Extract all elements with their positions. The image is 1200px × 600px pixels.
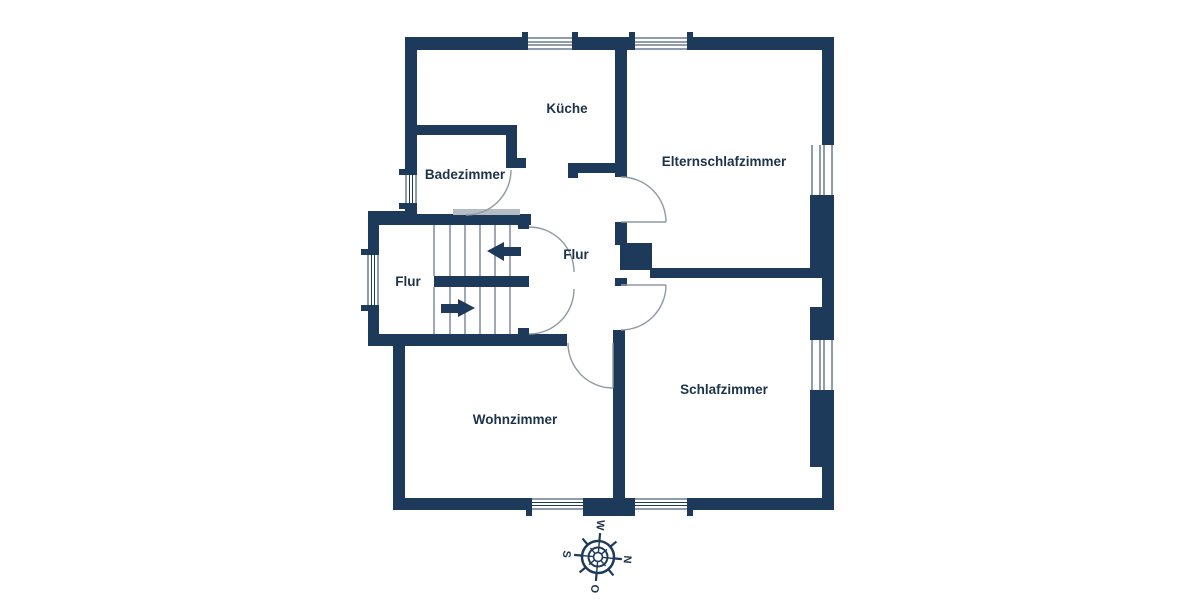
- wall-stair-right-lower: [518, 328, 529, 346]
- compass-letter-s: S: [560, 550, 573, 558]
- wall-pillar-bottom: [583, 498, 635, 516]
- interior-walls: [368, 50, 834, 510]
- stair-arrow-left: [487, 242, 521, 261]
- wall-pier-right-2: [810, 307, 822, 340]
- window-wohnzimmer: [526, 498, 583, 516]
- wall-badezimmer-stub: [506, 158, 526, 168]
- stair-arrow-right: [441, 299, 475, 317]
- wall-top: [405, 37, 834, 50]
- floorplan-drawing: Küche Elternschlafzimmer Badezimmer Flur…: [0, 0, 1200, 600]
- window-eltern-right: [810, 145, 834, 195]
- room-labels: Küche Elternschlafzimmer Badezimmer Flur…: [395, 101, 787, 427]
- wall-pier-right-3: [810, 390, 822, 467]
- window-eltern-top: [629, 32, 693, 50]
- door-arc-schlafzimmer: [621, 285, 666, 330]
- door-arc-elternschlafzimmer: [621, 177, 666, 222]
- wall-divider-wohn-schlaf: [613, 330, 625, 510]
- compass-ticks: [572, 531, 624, 583]
- wall-stair-landing: [434, 276, 529, 287]
- window-schlaf-right: [810, 340, 834, 390]
- compass-rose: N O S W: [557, 517, 636, 597]
- wall-badezimmer-top: [417, 125, 516, 135]
- chimney-block: [620, 243, 652, 270]
- door-arc-stair-lower: [529, 289, 574, 334]
- wall-kueche-jamb: [568, 163, 578, 178]
- wall-stair-right-upper: [518, 214, 529, 229]
- window-badezimmer: [399, 169, 417, 209]
- compass-letter-n: N: [621, 555, 634, 564]
- floorplan-canvas: Küche Elternschlafzimmer Badezimmer Flur…: [0, 0, 1200, 600]
- window-schlaf-bottom: [635, 498, 693, 516]
- wall-divider-mid: [615, 222, 627, 245]
- label-wohnzimmer: Wohnzimmer: [473, 412, 558, 427]
- label-elternschlafzimmer: Elternschlafzimmer: [662, 154, 787, 169]
- wall-pier-right-1: [810, 195, 822, 270]
- door-arc-wohnzimmer: [568, 343, 613, 388]
- wall-left-lower: [393, 334, 405, 510]
- wall-extension-bottom: [368, 334, 567, 346]
- label-badezimmer: Badezimmer: [425, 167, 506, 182]
- window-kueche: [522, 32, 578, 50]
- compass-outer-ring: [581, 540, 616, 575]
- wall-divider-eltern-schlaf: [650, 268, 834, 278]
- wall-stair-top: [368, 214, 531, 225]
- wall-divider-kueche-eltern: [615, 50, 627, 177]
- label-flur-mitte: Flur: [563, 247, 589, 262]
- compass-letter-o: O: [588, 584, 601, 594]
- window-flur: [361, 249, 379, 311]
- label-kueche: Küche: [546, 101, 588, 116]
- label-schlafzimmer: Schlafzimmer: [680, 382, 769, 397]
- compass-letter-w: W: [593, 519, 606, 531]
- label-flur-links: Flur: [395, 274, 421, 289]
